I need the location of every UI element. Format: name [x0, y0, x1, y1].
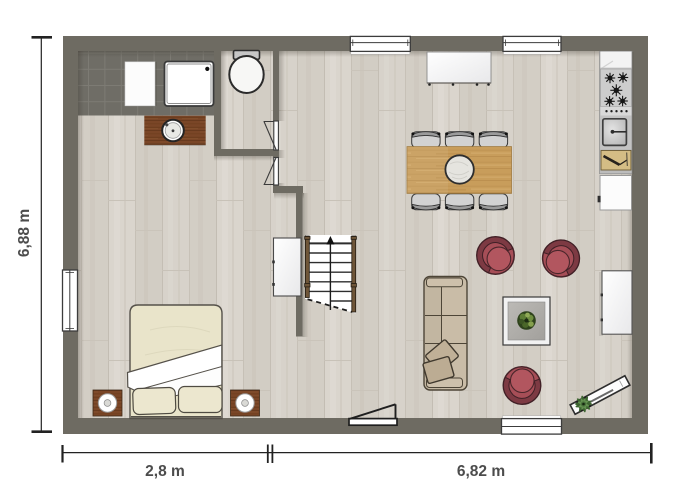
svg-text:2,8 m: 2,8 m	[145, 463, 185, 480]
svg-text:6,82 m: 6,82 m	[457, 463, 505, 480]
svg-text:6,88 m: 6,88 m	[16, 209, 33, 257]
